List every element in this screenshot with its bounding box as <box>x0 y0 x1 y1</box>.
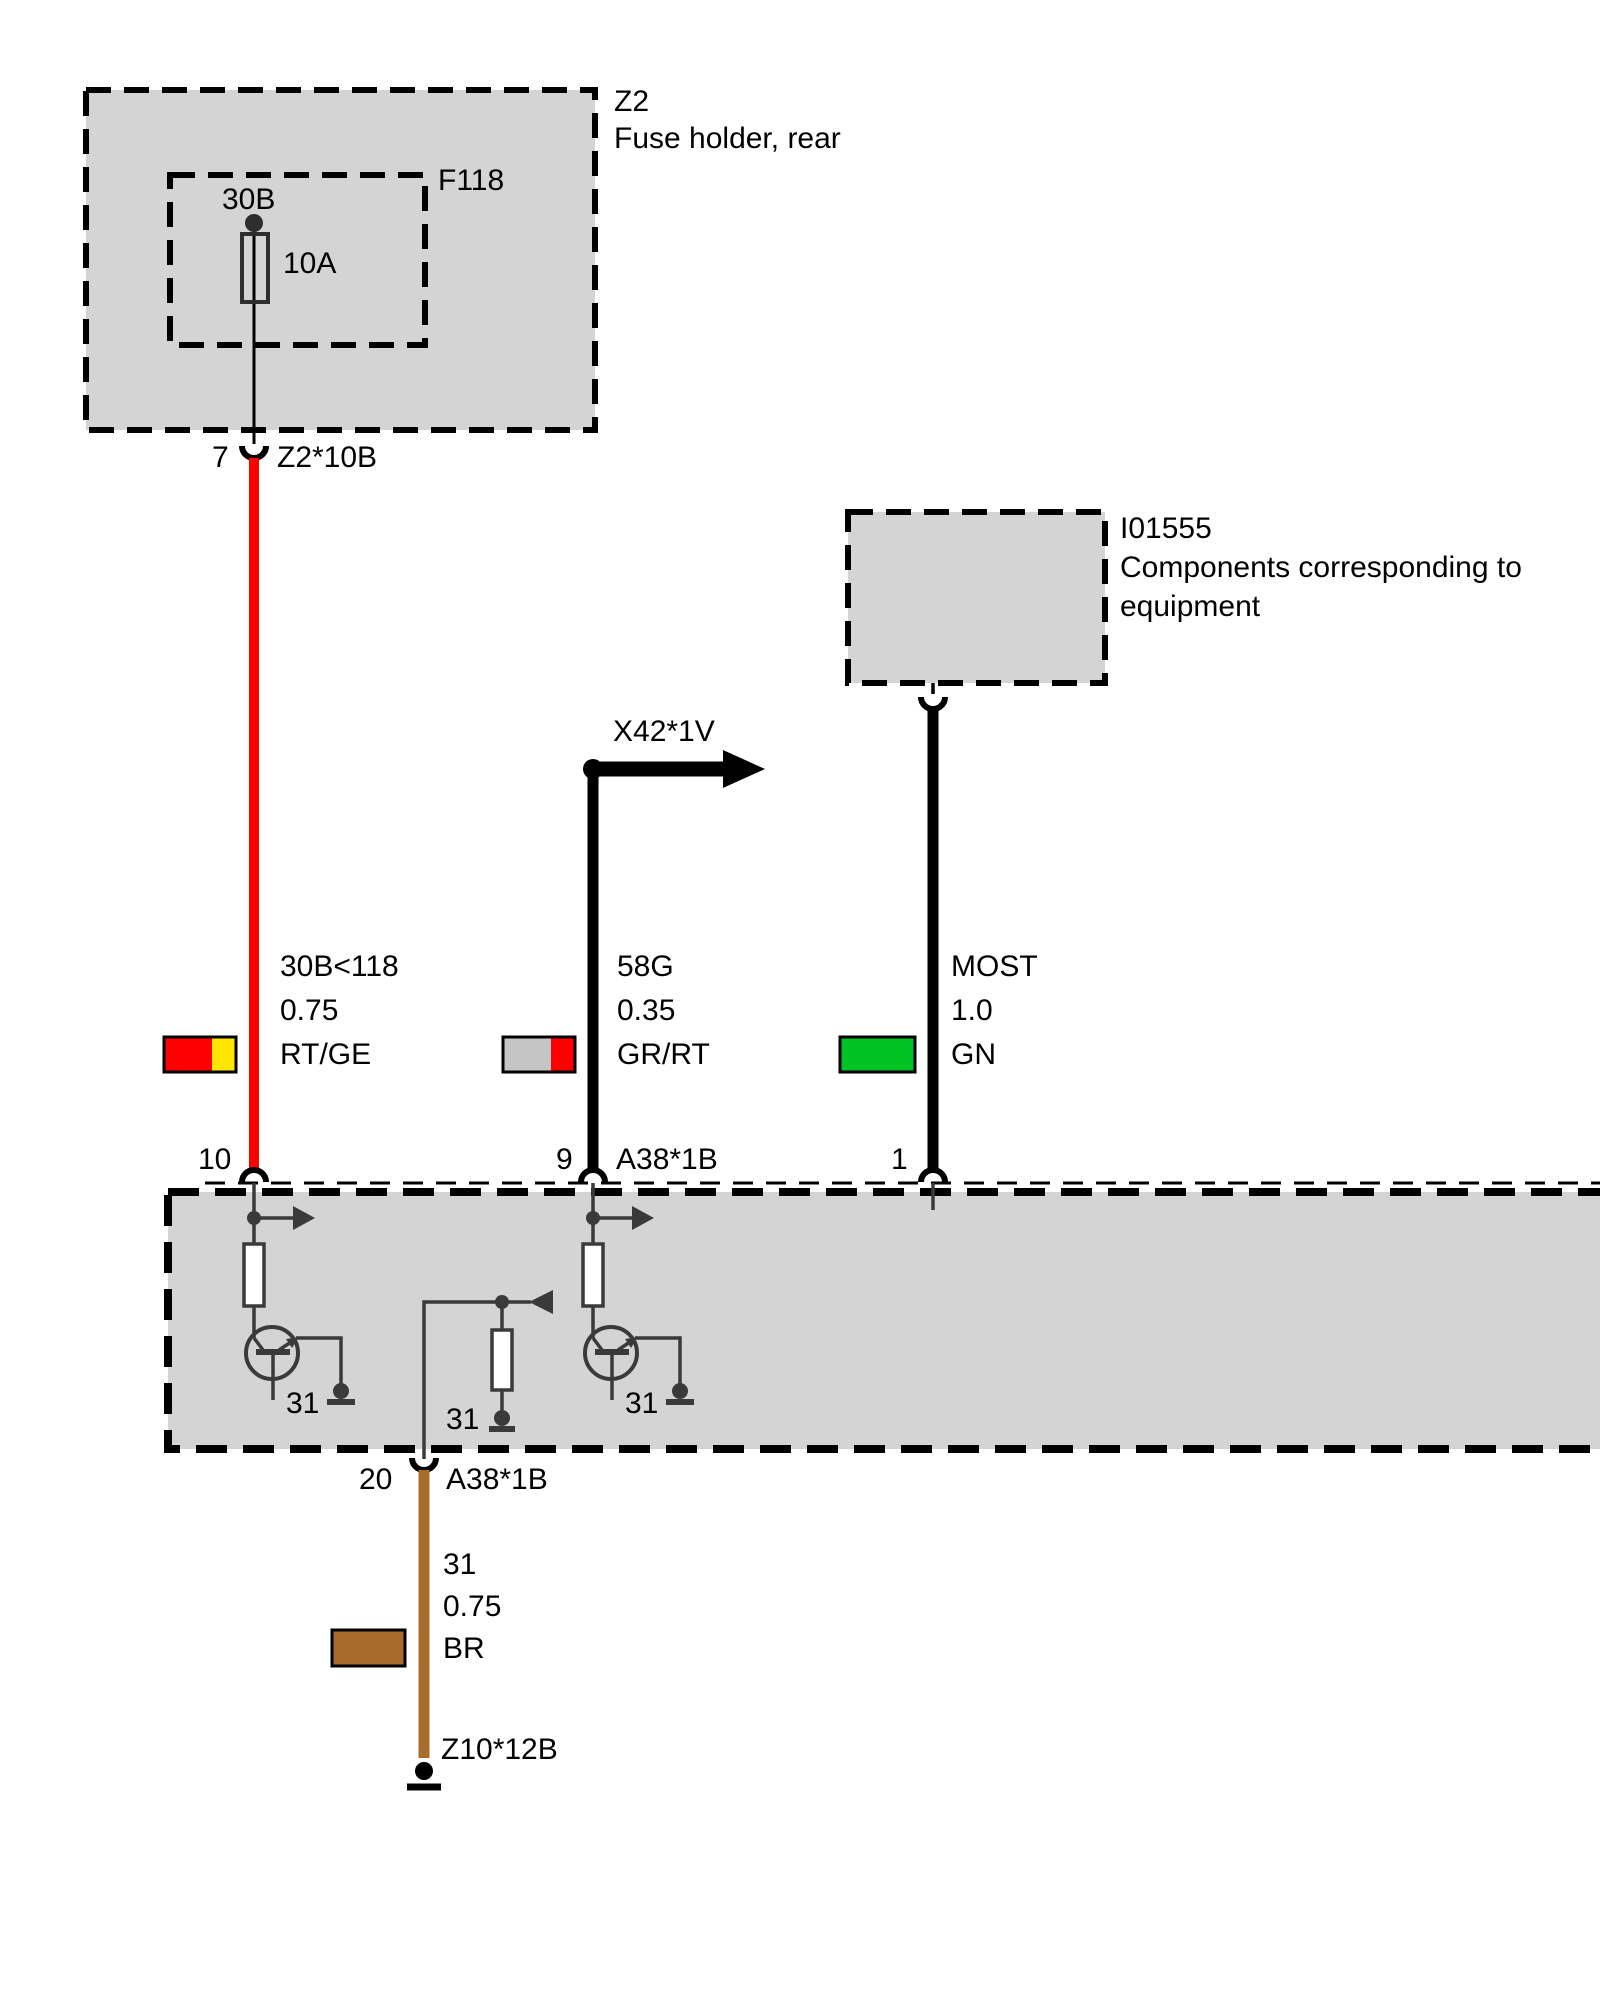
a38-connector-top-label: A38*1B <box>616 1142 718 1178</box>
pin1-label: 1 <box>891 1142 908 1178</box>
f118-label: F118 <box>438 163 504 199</box>
i01555-desc2-label: equipment <box>1120 589 1260 625</box>
terminal-30b-label: 30B <box>222 182 275 218</box>
pin9-label: 9 <box>556 1142 573 1178</box>
color-swatch-br <box>332 1630 405 1666</box>
connector-cup-pin20 <box>412 1458 436 1470</box>
z10-ground-label: Z10*12B <box>441 1732 558 1768</box>
gnd31-label-1: 31 <box>286 1386 319 1422</box>
wire2-circuit-label: 58G <box>617 949 674 985</box>
connector-cup-i01555 <box>921 697 945 709</box>
wiring-diagram: Z2 Fuse holder, rear F118 30B 10A 7 Z2*1… <box>0 0 1600 2000</box>
i01555-id-label: I01555 <box>1120 511 1212 547</box>
connector-cup-pin9 <box>581 1170 605 1182</box>
diagram-canvas <box>0 0 1600 2000</box>
x42-connector-label: X42*1V <box>613 714 715 750</box>
wire4-circuit-label: 31 <box>443 1547 476 1583</box>
pin20-label: 20 <box>359 1462 392 1498</box>
wire4-size-label: 0.75 <box>443 1589 501 1625</box>
z2-id-label: Z2 <box>614 84 649 120</box>
gnd31-label-2: 31 <box>625 1386 658 1422</box>
connector-cup-pin1 <box>921 1170 945 1182</box>
i01555-component-box <box>848 512 1105 694</box>
z2-fuse-holder-box <box>86 90 595 444</box>
wire1-color-label: RT/GE <box>280 1037 371 1073</box>
wire2-size-label: 0.35 <box>617 993 675 1029</box>
wire1-size-label: 0.75 <box>280 993 338 1029</box>
color-swatch-rt-ge <box>164 1037 236 1072</box>
wire3-size-label: 1.0 <box>951 993 993 1029</box>
z2-connector-label: Z2*10B <box>277 440 377 476</box>
wire4-color-label: BR <box>443 1631 485 1667</box>
pin7-label: 7 <box>212 440 229 476</box>
wire2-color-label: GR/RT <box>617 1037 710 1073</box>
fuse-rating-label: 10A <box>283 246 336 282</box>
connector-cup-pin7 <box>242 446 266 458</box>
wire1-circuit-label: 30B<118 <box>280 949 399 985</box>
wire3-circuit-label: MOST <box>951 949 1038 985</box>
ground-point-z10 <box>407 1762 441 1787</box>
pin10-label: 10 <box>198 1142 231 1178</box>
color-swatch-gr-rt <box>503 1037 575 1072</box>
a38-module-box <box>168 1192 1600 1449</box>
a38-connector-bottom-label: A38*1B <box>446 1462 548 1498</box>
x42-branch-arrow <box>583 750 765 788</box>
gnd31-label-3: 31 <box>446 1402 479 1438</box>
i01555-desc1-label: Components corresponding to <box>1120 550 1522 586</box>
connector-cup-pin10 <box>242 1170 266 1182</box>
color-swatch-gn <box>840 1037 915 1072</box>
wire3-color-label: GN <box>951 1037 996 1073</box>
z2-name-label: Fuse holder, rear <box>614 121 841 157</box>
